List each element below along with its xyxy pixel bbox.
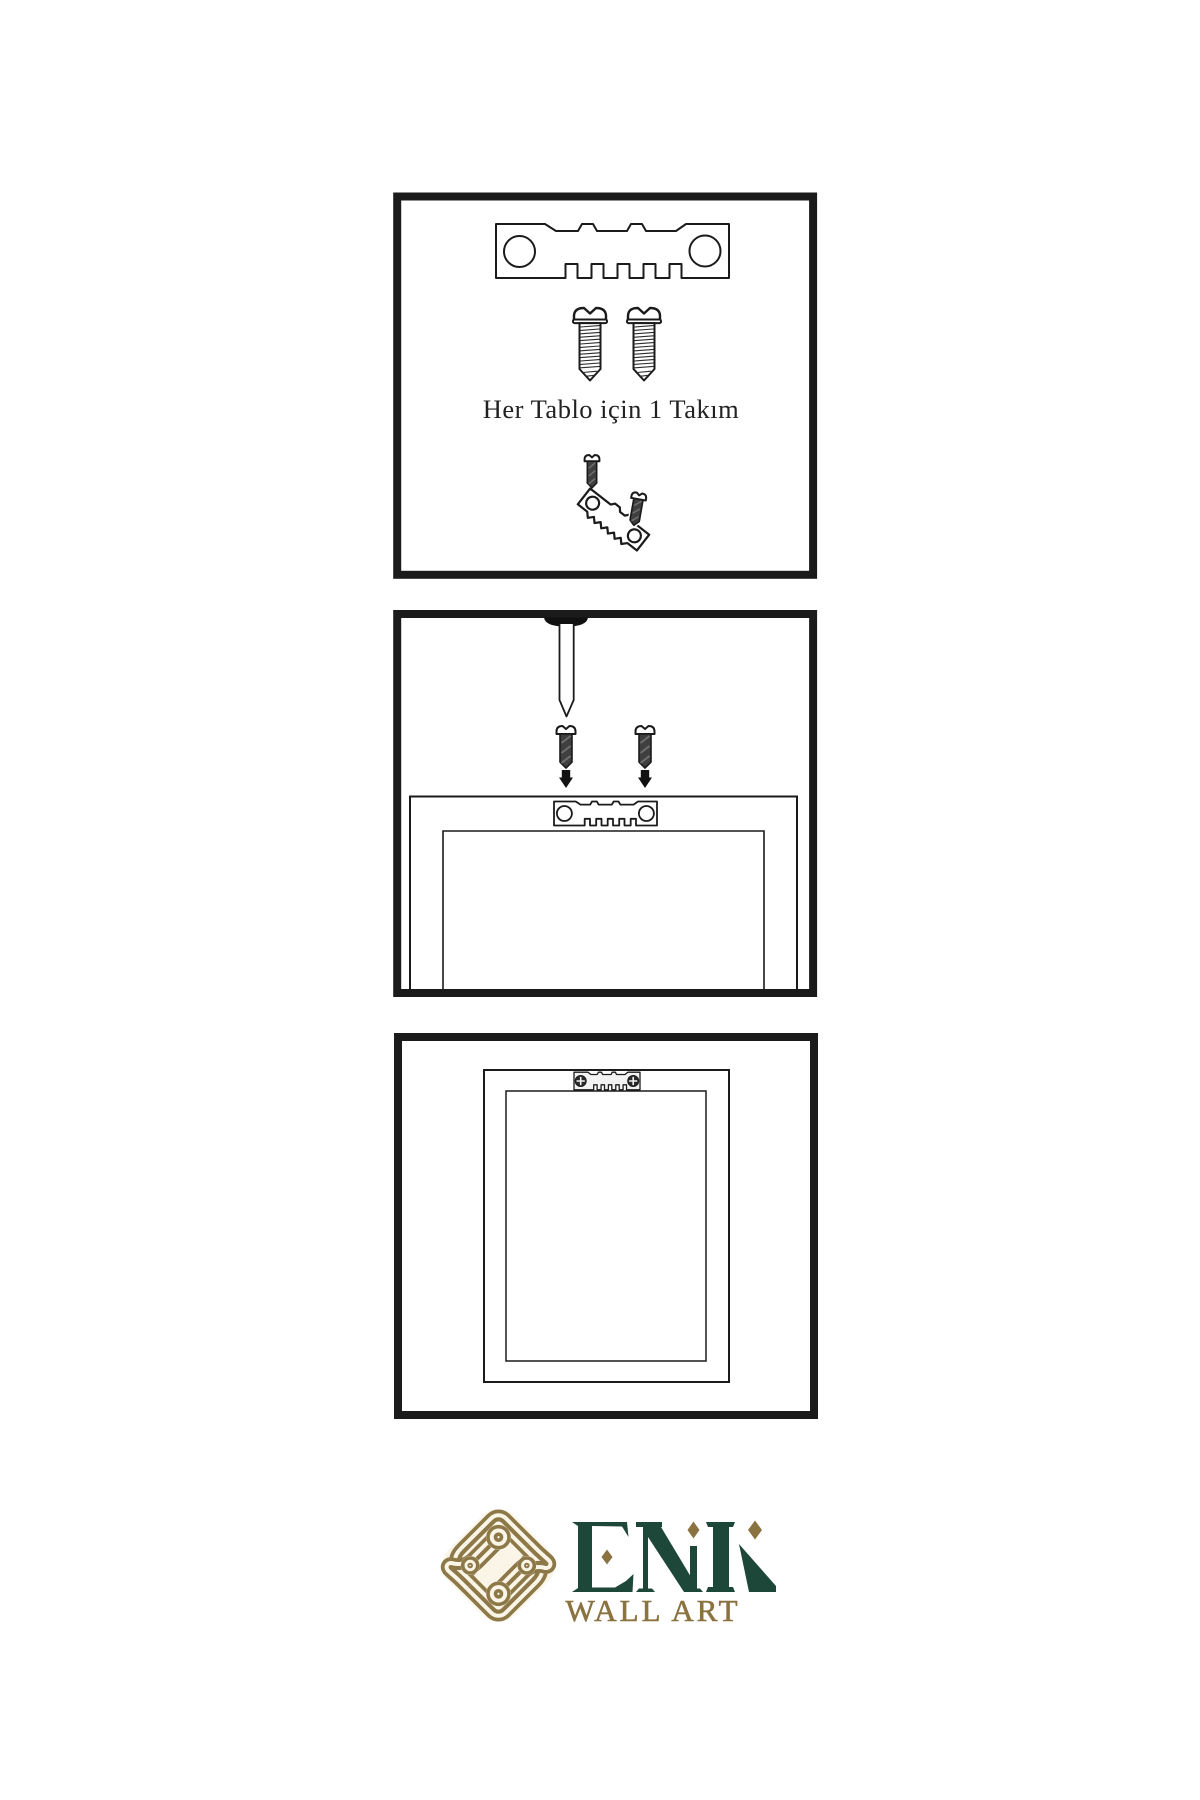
svg-text:WALL ART: WALL ART — [565, 1593, 740, 1628]
svg-text:Her Tablo için 1 Takım: Her Tablo için 1 Takım — [483, 394, 740, 424]
